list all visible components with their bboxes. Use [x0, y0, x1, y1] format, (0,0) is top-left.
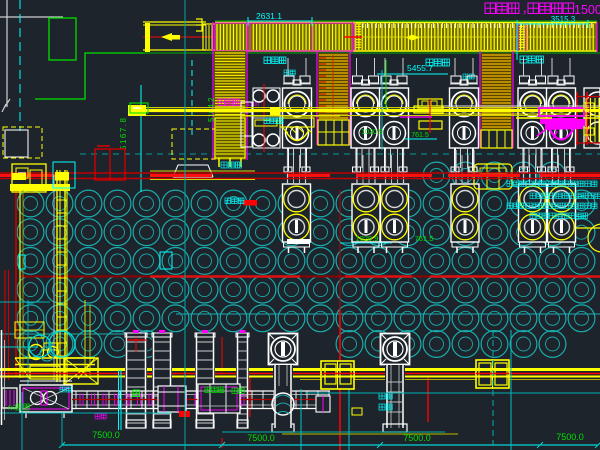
svg-text:3515.3: 3515.3	[551, 15, 576, 24]
svg-text:7500.0: 7500.0	[92, 430, 120, 440]
svg-text:1500m: 1500m	[574, 3, 600, 17]
svg-text:2631.1: 2631.1	[256, 11, 282, 21]
svg-text:7500.0: 7500.0	[247, 433, 275, 443]
svg-text:7500.0: 7500.0	[403, 433, 431, 443]
svg-text:N7: N7	[8, 405, 17, 412]
svg-text:5167.8: 5167.8	[119, 117, 128, 150]
svg-text:1020.9: 1020.9	[356, 234, 379, 243]
svg-text:7500.0: 7500.0	[556, 432, 584, 442]
svg-text:1020.9: 1020.9	[361, 129, 383, 136]
svg-text:761.5: 761.5	[411, 132, 429, 139]
svg-text:761.5: 761.5	[415, 234, 434, 243]
